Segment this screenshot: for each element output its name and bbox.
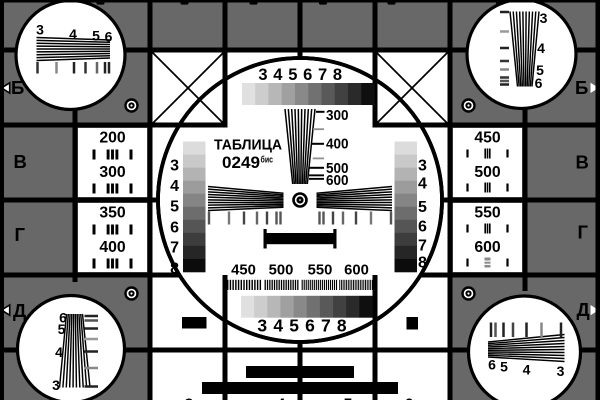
- svg-text:500: 500: [474, 164, 501, 181]
- svg-text:3: 3: [540, 10, 548, 26]
- svg-text:6: 6: [488, 357, 496, 373]
- svg-text:6: 6: [305, 316, 315, 336]
- svg-text:7: 7: [170, 240, 179, 257]
- svg-text:450: 450: [231, 263, 256, 279]
- svg-text:В: В: [576, 152, 589, 173]
- svg-text:8: 8: [333, 66, 342, 84]
- svg-text:300: 300: [326, 108, 349, 124]
- svg-text:500: 500: [269, 263, 294, 279]
- svg-text:бис: бис: [261, 155, 274, 165]
- svg-text:600: 600: [344, 263, 369, 279]
- svg-text:0249: 0249: [222, 153, 260, 172]
- svg-text:3: 3: [258, 66, 267, 84]
- svg-text:4: 4: [537, 40, 545, 56]
- svg-text:4: 4: [418, 176, 427, 193]
- svg-text:5: 5: [58, 321, 66, 337]
- svg-text:4: 4: [69, 26, 77, 42]
- svg-text:5: 5: [500, 359, 508, 375]
- svg-text:5: 5: [289, 316, 299, 336]
- svg-text:350: 350: [99, 205, 126, 222]
- svg-text:6: 6: [105, 29, 113, 45]
- svg-text:8: 8: [170, 261, 179, 278]
- svg-text:4: 4: [55, 344, 63, 360]
- svg-text:4: 4: [170, 178, 179, 195]
- svg-text:3: 3: [52, 377, 60, 393]
- svg-text:4: 4: [273, 66, 283, 84]
- svg-text:3: 3: [36, 22, 44, 38]
- svg-text:В: В: [14, 151, 27, 172]
- svg-text:5: 5: [170, 199, 179, 216]
- svg-text:4: 4: [523, 362, 531, 378]
- svg-text:5: 5: [288, 66, 297, 84]
- svg-text:6: 6: [303, 66, 312, 84]
- svg-text:3: 3: [185, 397, 194, 400]
- svg-text:3: 3: [257, 316, 267, 336]
- svg-text:Д: Д: [13, 300, 26, 321]
- svg-text:400: 400: [99, 239, 126, 256]
- svg-text:550: 550: [474, 205, 501, 222]
- svg-text:3: 3: [170, 158, 179, 175]
- svg-text:Б: Б: [11, 77, 24, 98]
- svg-text:3: 3: [557, 363, 565, 379]
- svg-text:600: 600: [474, 239, 501, 256]
- svg-text:450: 450: [474, 130, 501, 147]
- svg-text:300: 300: [99, 164, 126, 181]
- svg-text:8: 8: [418, 255, 427, 272]
- svg-text:Б: Б: [575, 77, 588, 98]
- svg-text:Д: Д: [577, 299, 590, 320]
- svg-text:400: 400: [326, 136, 349, 152]
- svg-text:Г: Г: [578, 222, 589, 243]
- svg-text:5: 5: [418, 199, 427, 216]
- svg-text:7: 7: [318, 66, 327, 84]
- svg-text:5: 5: [344, 397, 353, 400]
- svg-text:8: 8: [337, 316, 347, 336]
- svg-text:3: 3: [418, 158, 427, 175]
- svg-text:4: 4: [277, 397, 286, 400]
- svg-text:6: 6: [170, 220, 179, 237]
- svg-text:ТАБЛИЦА: ТАБЛИЦА: [214, 137, 282, 154]
- svg-text:200: 200: [99, 130, 126, 147]
- svg-text:550: 550: [308, 263, 333, 279]
- svg-text:6: 6: [535, 75, 543, 91]
- svg-text:6: 6: [418, 219, 427, 236]
- svg-text:Г: Г: [15, 224, 26, 245]
- svg-text:600: 600: [326, 173, 349, 189]
- svg-text:7: 7: [418, 238, 427, 255]
- svg-text:5: 5: [92, 27, 100, 43]
- svg-text:4: 4: [273, 316, 283, 336]
- svg-text:6: 6: [405, 397, 414, 400]
- svg-text:7: 7: [321, 316, 331, 336]
